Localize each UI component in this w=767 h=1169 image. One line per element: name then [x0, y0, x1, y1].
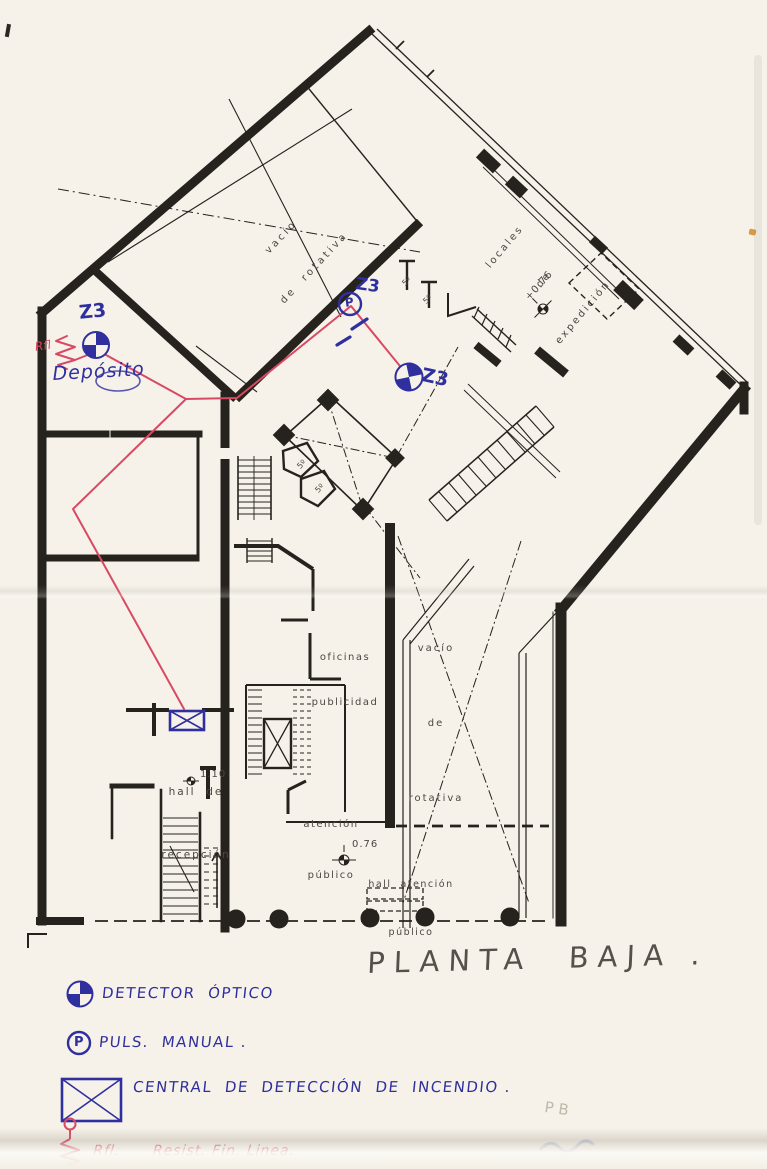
label-advertising-offices: oficinas publicidad [304, 620, 386, 740]
legend-callpoint-label: PULS. MANUAL . [98, 1033, 248, 1051]
fire-panel-icon [170, 711, 204, 730]
scan-smudge [754, 55, 762, 525]
blue-tick-marks [337, 319, 367, 345]
level-value-hall: 0.76 [352, 840, 378, 850]
fold-crease-bottom [0, 1128, 767, 1169]
loop-branch-to-panel [73, 350, 186, 709]
legend-detector-label: DETECTOR ÓPTICO [101, 984, 275, 1002]
label-public-attention: atención público [294, 782, 368, 918]
eol-resistor-tag: Rfl [34, 338, 52, 354]
zone-tag-callpoint: Z3 [354, 274, 381, 297]
level-value-reception: 1.10 [200, 770, 226, 780]
label-reception-hall: hall de recepción [140, 740, 252, 908]
optical-detector-icon [68, 982, 93, 1007]
legend-callpoint-letter: P [74, 1035, 84, 1050]
fire-panel-icon [62, 1079, 121, 1121]
diagonal-staircase [429, 406, 554, 521]
call-point-letter: P [344, 295, 355, 310]
scanned-floor-plan: vacío de rotativa locales de expedición … [0, 0, 767, 1169]
faint-pencil-mark: P B [543, 1098, 569, 1119]
label-rotary-void-right: vacío de rotativa [398, 586, 474, 861]
legend-panel-label: CENTRAL DE DETECCIÓN DE INCENDIO . [132, 1078, 512, 1096]
optical-detector-icon [83, 332, 109, 358]
zone-tag-deposito: Z3 [78, 299, 107, 324]
fold-crease [0, 585, 767, 599]
door-gap [219, 448, 231, 459]
